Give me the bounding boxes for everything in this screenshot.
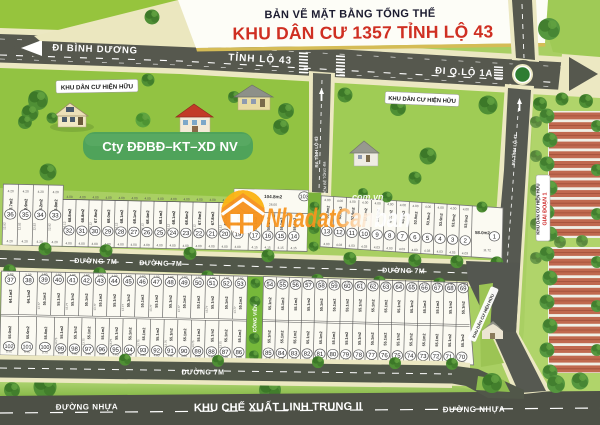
svg-text:4.20: 4.20 xyxy=(53,190,60,194)
svg-text:4.00: 4.00 xyxy=(105,196,112,200)
svg-text:12.92: 12.92 xyxy=(17,222,21,230)
svg-text:4.00: 4.00 xyxy=(209,276,215,280)
svg-text:4.00: 4.00 xyxy=(98,274,104,278)
svg-text:4.03: 4.03 xyxy=(374,245,381,249)
svg-text:55.1m2: 55.1m2 xyxy=(197,296,201,309)
svg-text:55.1m2: 55.1m2 xyxy=(461,334,465,347)
svg-text:55.1m2: 55.1m2 xyxy=(156,328,160,341)
svg-text:31: 31 xyxy=(78,229,85,235)
svg-text:55.1m2: 55.1m2 xyxy=(210,329,214,342)
svg-text:BẢN VẼ MẶT BẰNG TỔNG THỂ: BẢN VẼ MẶT BẰNG TỔNG THỂ xyxy=(264,7,435,21)
svg-text:55.1m2: 55.1m2 xyxy=(127,294,131,307)
svg-text:4.00: 4.00 xyxy=(450,207,457,211)
svg-text:55.1m2: 55.1m2 xyxy=(141,295,145,308)
svg-text:29: 29 xyxy=(104,229,111,235)
svg-text:64: 64 xyxy=(395,285,402,291)
svg-text:33: 33 xyxy=(52,212,60,219)
svg-text:26: 26 xyxy=(143,230,150,236)
svg-text:4.00: 4.00 xyxy=(409,282,415,286)
svg-text:ĐƯỜNG NHỰA: ĐƯỜNG NHỰA xyxy=(56,402,119,412)
svg-text:55.1m2: 55.1m2 xyxy=(268,297,272,310)
svg-text:44: 44 xyxy=(111,279,118,285)
svg-text:4.03: 4.03 xyxy=(386,246,393,250)
svg-text:4.00: 4.00 xyxy=(66,195,73,199)
svg-text:4.03: 4.03 xyxy=(323,242,330,246)
svg-text:68.4m2: 68.4m2 xyxy=(145,209,150,223)
svg-text:4.00: 4.00 xyxy=(154,353,160,357)
svg-text:35: 35 xyxy=(22,212,30,219)
svg-text:55.1m2: 55.1m2 xyxy=(449,301,453,314)
svg-text:14: 14 xyxy=(290,234,297,240)
svg-text:ĐƯỜNG 7M: ĐƯỜNG 7M xyxy=(181,368,224,377)
svg-text:13.77: 13.77 xyxy=(205,305,209,313)
svg-text:55.1m2: 55.1m2 xyxy=(345,332,349,345)
svg-text:4.00: 4.00 xyxy=(195,244,202,248)
svg-text:13.75: 13.75 xyxy=(109,338,113,346)
svg-text:32: 32 xyxy=(65,229,72,235)
svg-text:55.1m2: 55.1m2 xyxy=(239,297,243,310)
svg-text:4.00: 4.00 xyxy=(223,276,229,280)
svg-text:69: 69 xyxy=(460,286,467,292)
svg-text:4.15: 4.15 xyxy=(251,245,258,249)
svg-text:55.1m2: 55.1m2 xyxy=(43,292,47,305)
svg-text:5.09: 5.09 xyxy=(26,273,32,277)
svg-text:55.1m2: 55.1m2 xyxy=(74,326,78,339)
svg-text:Cty ĐĐBĐ–KT–XD NV: Cty ĐĐBĐ–KT–XD NV xyxy=(102,139,238,154)
svg-text:55.1m2: 55.1m2 xyxy=(115,327,119,340)
svg-text:37: 37 xyxy=(7,278,14,284)
svg-text:12.92: 12.92 xyxy=(47,223,51,231)
svg-text:4.00: 4.00 xyxy=(396,281,402,285)
svg-text:HẺM BÊ TÔNG 4M: HẺM BÊ TÔNG 4M xyxy=(322,162,328,195)
svg-text:55.1m2: 55.1m2 xyxy=(333,299,337,312)
svg-text:62: 62 xyxy=(370,284,377,290)
svg-text:4.00: 4.00 xyxy=(306,279,312,283)
svg-text:48: 48 xyxy=(167,280,174,286)
svg-text:5.75: 5.75 xyxy=(24,350,30,354)
svg-text:55.1m2: 55.1m2 xyxy=(448,334,452,347)
svg-text:68.1m2: 68.1m2 xyxy=(171,210,176,224)
svg-text:13.77: 13.77 xyxy=(37,302,41,310)
svg-text:61: 61 xyxy=(357,284,364,290)
svg-text:4.20: 4.20 xyxy=(7,239,14,243)
svg-text:55.1m2: 55.1m2 xyxy=(169,295,173,308)
svg-text:12.92: 12.92 xyxy=(2,222,6,230)
svg-text:66: 66 xyxy=(421,285,428,291)
svg-text:4.15: 4.15 xyxy=(277,246,284,250)
svg-text:55.1m2: 55.1m2 xyxy=(397,300,401,313)
svg-text:17: 17 xyxy=(251,233,258,239)
svg-text:55.1m2: 55.1m2 xyxy=(371,332,375,345)
svg-text:55.1m2: 55.1m2 xyxy=(422,333,426,346)
svg-text:4.00: 4.00 xyxy=(78,242,85,246)
svg-text:4.03: 4.03 xyxy=(361,245,368,249)
svg-text:4.00: 4.00 xyxy=(144,197,151,201)
svg-text:4.00: 4.00 xyxy=(221,245,228,249)
svg-text:4.00: 4.00 xyxy=(70,273,76,277)
svg-text:54: 54 xyxy=(266,282,273,288)
svg-text:67: 67 xyxy=(434,286,441,292)
svg-text:RA TỈNH LỘ 43: RA TỈNH LỘ 43 xyxy=(314,136,320,168)
svg-text:17.12: 17.12 xyxy=(218,224,222,232)
svg-text:68.8m2: 68.8m2 xyxy=(80,208,85,222)
svg-text:55.1m2: 55.1m2 xyxy=(383,333,387,346)
svg-text:4.00: 4.00 xyxy=(318,280,324,284)
svg-text:55.1m2: 55.1m2 xyxy=(345,299,349,312)
svg-text:55.1m2: 55.1m2 xyxy=(267,330,271,343)
svg-text:55.1m2: 55.1m2 xyxy=(293,331,297,344)
svg-text:4.00: 4.00 xyxy=(56,273,62,277)
svg-text:55.1m2: 55.1m2 xyxy=(423,300,427,313)
svg-text:55.1m2: 55.1m2 xyxy=(99,294,103,307)
svg-text:55.1m2: 55.1m2 xyxy=(183,328,187,341)
svg-text:4.00: 4.00 xyxy=(331,280,337,284)
svg-text:55.0m2: 55.0m2 xyxy=(44,326,48,339)
svg-text:4.00: 4.00 xyxy=(293,279,299,283)
svg-text:55.1m2: 55.1m2 xyxy=(307,298,311,311)
svg-text:55.1m2: 55.1m2 xyxy=(435,334,439,347)
svg-text:55: 55 xyxy=(279,283,286,289)
svg-text:50: 50 xyxy=(195,281,202,287)
svg-text:4.03: 4.03 xyxy=(424,249,431,253)
svg-text:55.1m2: 55.1m2 xyxy=(113,294,117,307)
svg-text:4.00: 4.00 xyxy=(447,282,453,286)
svg-text:4.20: 4.20 xyxy=(8,189,15,193)
svg-text:4.00: 4.00 xyxy=(71,352,77,356)
svg-text:4.00: 4.00 xyxy=(357,280,363,284)
svg-text:4.00: 4.00 xyxy=(99,352,105,356)
svg-text:68.8m2: 68.8m2 xyxy=(67,208,72,222)
svg-text:4.00: 4.00 xyxy=(280,279,286,283)
svg-text:68.0m2: 68.0m2 xyxy=(106,209,111,223)
svg-text:4.03: 4.03 xyxy=(399,247,406,251)
svg-text:55.1m2: 55.1m2 xyxy=(319,331,323,344)
svg-text:53: 53 xyxy=(237,282,244,288)
svg-text:13.75: 13.75 xyxy=(191,340,195,348)
svg-text:5.75: 5.75 xyxy=(6,350,12,354)
svg-text:13.77: 13.77 xyxy=(177,305,181,313)
svg-text:55.1m2: 55.1m2 xyxy=(358,299,362,312)
svg-text:4.00: 4.00 xyxy=(58,351,64,355)
svg-text:4.00: 4.00 xyxy=(168,275,174,279)
svg-text:KHU DÂN CƯ 1357 TỈNH LỘ 43: KHU DÂN CƯ 1357 TỈNH LỘ 43 xyxy=(232,20,493,43)
svg-text:43: 43 xyxy=(97,279,104,285)
svg-text:55.1m2: 55.1m2 xyxy=(294,298,298,311)
svg-text:41: 41 xyxy=(69,278,76,284)
svg-text:39: 39 xyxy=(41,278,48,284)
svg-text:27: 27 xyxy=(130,230,137,236)
svg-text:4.00: 4.00 xyxy=(91,242,98,246)
svg-text:12.92: 12.92 xyxy=(32,223,36,231)
svg-text:4.00: 4.00 xyxy=(92,195,99,199)
svg-text:16: 16 xyxy=(264,234,271,240)
svg-text:4.20: 4.20 xyxy=(38,190,45,194)
svg-text:4.00: 4.00 xyxy=(42,272,48,276)
svg-text:55.1m2: 55.1m2 xyxy=(332,332,336,345)
svg-text:55.1m2: 55.1m2 xyxy=(238,330,242,343)
svg-text:4.00: 4.00 xyxy=(383,281,389,285)
svg-text:67.9m2: 67.9m2 xyxy=(197,211,202,225)
svg-text:17.12: 17.12 xyxy=(62,221,66,229)
svg-text:4.00: 4.00 xyxy=(157,197,164,201)
svg-text:4.00: 4.00 xyxy=(79,195,86,199)
svg-text:5.75: 5.75 xyxy=(42,350,48,354)
svg-text:4.00: 4.00 xyxy=(344,280,350,284)
svg-text:34: 34 xyxy=(37,212,45,219)
svg-text:55.1m2: 55.1m2 xyxy=(183,295,187,308)
svg-text:15: 15 xyxy=(277,234,284,240)
svg-text:4.00: 4.00 xyxy=(196,276,202,280)
svg-text:55.1m2: 55.1m2 xyxy=(224,329,228,342)
svg-text:ĐƯỜNG NHỰA: ĐƯỜNG NHỰA xyxy=(443,405,506,415)
svg-text:23: 23 xyxy=(182,231,189,237)
svg-text:4.00: 4.00 xyxy=(126,274,132,278)
svg-text:4.00: 4.00 xyxy=(267,279,273,283)
svg-text:4.00: 4.00 xyxy=(85,352,91,356)
svg-text:47: 47 xyxy=(153,280,160,286)
svg-text:KHU DÂN CƯ HIỆN HỮU: KHU DÂN CƯ HIỆN HỮU xyxy=(61,82,134,91)
svg-text:17.12: 17.12 xyxy=(88,222,92,230)
svg-text:4.00: 4.00 xyxy=(117,242,124,246)
svg-text:68.1m2: 68.1m2 xyxy=(119,209,124,223)
svg-text:28: 28 xyxy=(117,230,124,236)
svg-text:4.15: 4.15 xyxy=(264,246,271,250)
svg-text:5.09: 5.09 xyxy=(8,272,14,276)
svg-text:55.0m2: 55.0m2 xyxy=(26,326,30,339)
svg-text:55.1m2: 55.1m2 xyxy=(85,293,89,306)
svg-text:13.77: 13.77 xyxy=(121,304,125,312)
svg-text:55.1m2: 55.1m2 xyxy=(128,327,132,340)
svg-text:4.00: 4.00 xyxy=(140,353,146,357)
svg-text:13.75: 13.75 xyxy=(81,338,85,346)
svg-text:4.00: 4.00 xyxy=(234,245,241,249)
svg-text:4.00: 4.00 xyxy=(181,354,187,358)
svg-text:63: 63 xyxy=(382,285,389,291)
svg-text:59: 59 xyxy=(331,284,338,290)
svg-text:40: 40 xyxy=(55,278,62,284)
svg-text:55.1m2: 55.1m2 xyxy=(101,327,105,340)
svg-text:46: 46 xyxy=(139,280,146,286)
svg-text:55.1m2: 55.1m2 xyxy=(60,326,64,339)
svg-text:13.77: 13.77 xyxy=(233,306,237,314)
svg-text:13.75: 13.75 xyxy=(136,339,140,347)
svg-text:NhadatCanban: NhadatCanban xyxy=(266,203,411,233)
svg-text:4.00: 4.00 xyxy=(324,198,331,202)
svg-text:30: 30 xyxy=(91,229,98,235)
svg-text:GIAI ĐOẠN 1: GIAI ĐOẠN 1 xyxy=(543,193,549,226)
svg-text:55.1m2: 55.1m2 xyxy=(225,296,229,309)
svg-text:4.03: 4.03 xyxy=(437,250,444,254)
svg-text:4.00: 4.00 xyxy=(209,198,216,202)
svg-text:22: 22 xyxy=(195,231,202,237)
svg-text:55.1m2: 55.1m2 xyxy=(57,293,61,306)
svg-text:42: 42 xyxy=(83,278,90,284)
svg-text:57: 57 xyxy=(305,283,312,289)
svg-text:4.00: 4.00 xyxy=(130,243,137,247)
svg-text:13.75: 13.75 xyxy=(218,341,222,349)
svg-text:25: 25 xyxy=(156,230,163,236)
svg-text:55.1m2: 55.1m2 xyxy=(409,333,413,346)
svg-text:36: 36 xyxy=(7,211,15,218)
svg-text:55.1m2: 55.1m2 xyxy=(169,328,173,341)
svg-text:17.12: 17.12 xyxy=(114,222,118,230)
svg-text:4.00: 4.00 xyxy=(169,244,176,248)
svg-text:13.77: 13.77 xyxy=(65,302,69,310)
svg-text:com.vn: com.vn xyxy=(352,192,384,202)
svg-text:52: 52 xyxy=(223,281,230,287)
svg-text:104.8m2: 104.8m2 xyxy=(264,194,283,199)
svg-text:4.00: 4.00 xyxy=(196,198,203,202)
svg-text:68.1m2: 68.1m2 xyxy=(132,209,137,223)
svg-text:KHU DÂN CƯ HIỆN HỮU: KHU DÂN CƯ HIỆN HỮU xyxy=(536,183,541,234)
svg-text:55.1m2: 55.1m2 xyxy=(306,331,310,344)
svg-text:55.1m2: 55.1m2 xyxy=(462,301,466,314)
svg-text:68.1m2: 68.1m2 xyxy=(158,210,163,224)
svg-text:4.00: 4.00 xyxy=(463,207,470,211)
svg-text:68: 68 xyxy=(447,286,454,292)
svg-text:11.72: 11.72 xyxy=(483,248,491,252)
svg-text:4.00: 4.00 xyxy=(112,274,118,278)
svg-text:4.00: 4.00 xyxy=(143,243,150,247)
svg-text:4.03: 4.03 xyxy=(349,244,356,248)
svg-text:4.15: 4.15 xyxy=(290,246,297,250)
svg-text:4.00: 4.00 xyxy=(167,354,173,358)
svg-text:4.00: 4.00 xyxy=(154,275,160,279)
svg-text:4.03: 4.03 xyxy=(462,251,469,255)
svg-text:4.00: 4.00 xyxy=(208,244,215,248)
svg-text:55.1m2: 55.1m2 xyxy=(320,298,324,311)
svg-text:55.1m2: 55.1m2 xyxy=(155,295,159,308)
svg-text:55.1m2: 55.1m2 xyxy=(384,300,388,313)
svg-text:55.1m2: 55.1m2 xyxy=(396,333,400,346)
svg-text:17.12: 17.12 xyxy=(140,223,144,231)
svg-text:55.1m2: 55.1m2 xyxy=(358,332,362,345)
svg-text:55.0m2: 55.0m2 xyxy=(8,326,12,339)
svg-text:67.9m2: 67.9m2 xyxy=(93,208,98,222)
svg-text:55.1m2: 55.1m2 xyxy=(142,328,146,341)
svg-text:4.00: 4.00 xyxy=(84,273,90,277)
svg-text:60: 60 xyxy=(344,284,351,290)
svg-text:58: 58 xyxy=(318,283,325,289)
svg-text:45: 45 xyxy=(125,279,132,285)
svg-text:13.75: 13.75 xyxy=(54,337,58,345)
svg-text:4.00: 4.00 xyxy=(170,197,177,201)
svg-text:4.00: 4.00 xyxy=(113,352,119,356)
svg-text:55.1m2: 55.1m2 xyxy=(71,293,75,306)
svg-text:55.1m2: 55.1m2 xyxy=(281,297,285,310)
svg-text:49: 49 xyxy=(181,280,188,286)
svg-text:103: 103 xyxy=(300,194,309,200)
svg-text:55.1m2: 55.1m2 xyxy=(197,329,201,342)
svg-text:17.12: 17.12 xyxy=(166,223,170,231)
svg-text:4.00: 4.00 xyxy=(183,197,190,201)
svg-text:20: 20 xyxy=(221,232,228,238)
svg-text:4.00: 4.00 xyxy=(66,241,73,245)
svg-text:68.0m2: 68.0m2 xyxy=(184,210,189,224)
svg-text:4.00: 4.00 xyxy=(156,243,163,247)
svg-text:4.00: 4.00 xyxy=(140,274,146,278)
svg-text:4.00: 4.00 xyxy=(435,282,441,286)
svg-text:4.00: 4.00 xyxy=(370,281,376,285)
svg-text:55.1m2: 55.1m2 xyxy=(436,301,440,314)
svg-text:55.1m2: 55.1m2 xyxy=(410,300,414,313)
svg-text:55.1m2: 55.1m2 xyxy=(211,296,215,309)
svg-text:13.77: 13.77 xyxy=(149,304,153,312)
svg-text:58.0m2: 58.0m2 xyxy=(475,230,491,235)
svg-text:4.00: 4.00 xyxy=(438,206,445,210)
svg-text:4.00: 4.00 xyxy=(460,283,466,287)
svg-text:4.20: 4.20 xyxy=(23,189,30,193)
svg-text:51: 51 xyxy=(209,281,216,287)
svg-text:4.03: 4.03 xyxy=(336,243,343,247)
svg-text:4.20: 4.20 xyxy=(22,239,29,243)
svg-text:24: 24 xyxy=(169,231,176,237)
svg-text:64.1m2: 64.1m2 xyxy=(26,289,31,303)
svg-text:4.03: 4.03 xyxy=(449,250,456,254)
svg-text:55.1m2: 55.1m2 xyxy=(87,326,91,339)
svg-text:4.00: 4.00 xyxy=(422,282,428,286)
svg-text:55.1m2: 55.1m2 xyxy=(280,330,284,343)
svg-text:4.03: 4.03 xyxy=(411,248,418,252)
svg-text:13.75: 13.75 xyxy=(164,340,168,348)
svg-text:38: 38 xyxy=(25,278,32,284)
svg-text:17.12: 17.12 xyxy=(192,224,196,232)
svg-text:4.00: 4.00 xyxy=(118,196,125,200)
svg-text:4.00: 4.00 xyxy=(131,196,138,200)
svg-text:67.8m2: 67.8m2 xyxy=(210,211,215,225)
svg-text:21: 21 xyxy=(208,232,215,238)
svg-text:55.1m2: 55.1m2 xyxy=(371,299,375,312)
svg-text:4.00: 4.00 xyxy=(237,276,243,280)
svg-text:64.1m2: 64.1m2 xyxy=(8,289,13,303)
svg-text:13.77: 13.77 xyxy=(93,303,97,311)
svg-text:4.00: 4.00 xyxy=(182,275,188,279)
svg-text:4.00: 4.00 xyxy=(425,205,432,209)
svg-text:65: 65 xyxy=(408,285,415,291)
svg-text:KHU CHẾ XUẤT LINH TRUNG II: KHU CHẾ XUẤT LINH TRUNG II xyxy=(194,400,362,414)
svg-text:4.00: 4.00 xyxy=(412,204,419,208)
svg-text:56: 56 xyxy=(292,283,299,289)
svg-text:4.20: 4.20 xyxy=(52,240,59,244)
